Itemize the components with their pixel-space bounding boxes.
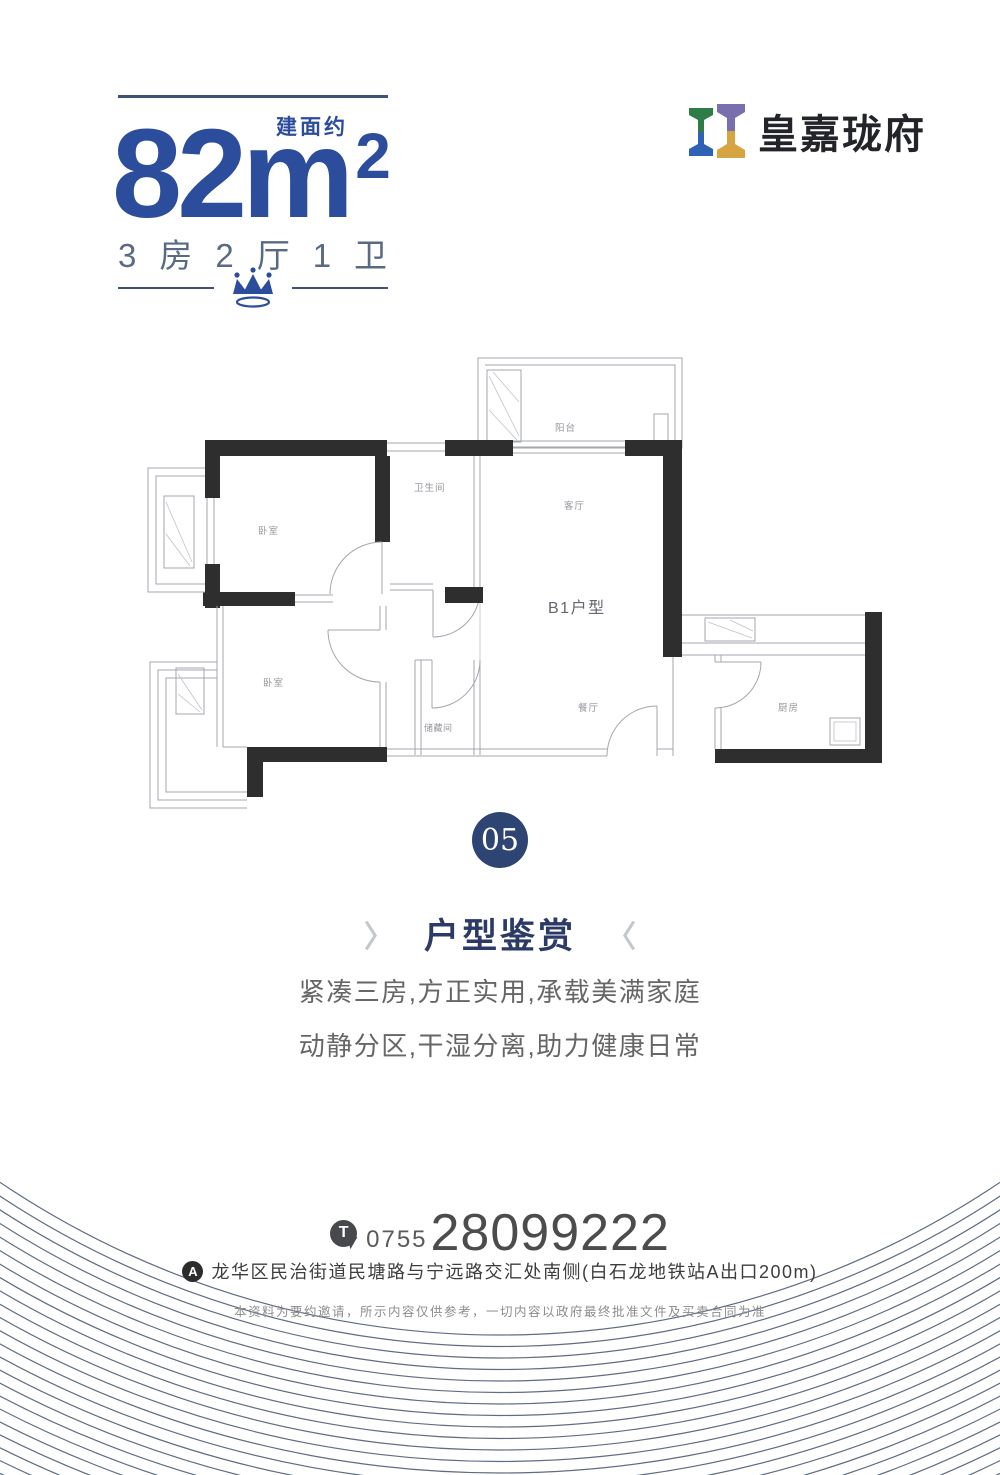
section-number-badge: 05	[472, 812, 528, 868]
decorative-arcs	[0, 1080, 1000, 1475]
unit-label: B1户型	[548, 599, 606, 617]
left-bracket-icon: 〉	[364, 912, 394, 956]
floor-plan: 卧室 卫生间 阳台 客厅 B1户型 卧室 储藏间 餐厅 厨房	[130, 330, 890, 815]
room-label-dining: 餐厅	[578, 702, 599, 714]
section-title: 户型鉴赏	[424, 908, 576, 959]
room-label-balcony: 阳台	[555, 422, 576, 434]
section-title-row: 〉 户型鉴赏 〈	[0, 908, 1000, 959]
room-label-kitchen: 厨房	[778, 702, 799, 714]
room-label-bedroom-bottom: 卧室	[263, 677, 284, 689]
area-superscript: 2	[355, 124, 391, 188]
flyer-page: 建面约 82m 2 3房2厅1卫 皇嘉珑府	[0, 0, 1000, 1475]
area-number: 82m	[112, 116, 349, 232]
crown-divider	[118, 266, 388, 310]
room-label-bathroom: 卫生间	[414, 482, 446, 494]
crown-icon	[224, 266, 282, 310]
room-label-bedroom-top: 卧室	[258, 525, 279, 537]
right-bracket-icon: 〈	[606, 912, 636, 956]
description-line-1: 紧凑三房,方正实用,承载美满家庭	[0, 972, 1000, 1009]
brand-logo: 皇嘉珑府	[688, 102, 926, 160]
description-line-2: 动静分区,干湿分离,助力健康日常	[0, 1026, 1000, 1063]
room-label-storage: 储藏间	[424, 722, 453, 733]
brand-name: 皇嘉珑府	[758, 102, 926, 160]
brand-logo-icon	[688, 102, 748, 160]
crown-left-rule	[118, 287, 214, 289]
crown-right-rule	[292, 287, 388, 289]
area-headline: 82m 2	[112, 116, 391, 232]
header-top-rule	[118, 95, 388, 98]
room-label-living: 客厅	[564, 500, 585, 512]
